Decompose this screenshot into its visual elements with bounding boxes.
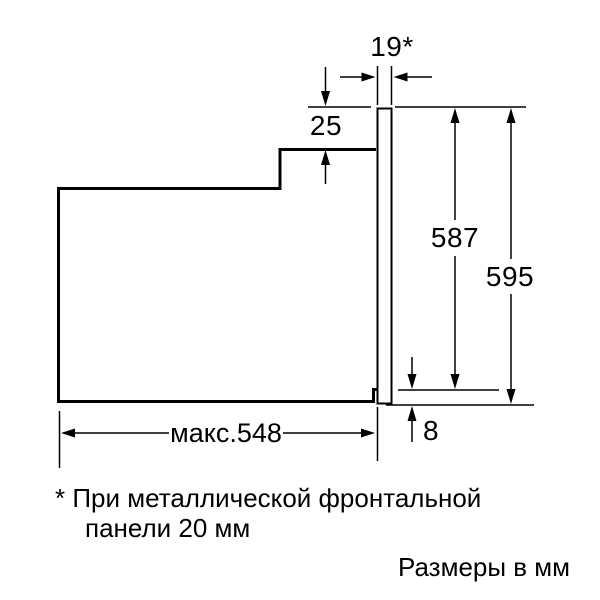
arrow-19-right <box>394 73 433 82</box>
oven-body-outline <box>59 150 378 402</box>
arrow-25-down <box>321 67 330 106</box>
footnote-line-1: * При металлической фронтальной <box>55 484 481 514</box>
units-caption: Размеры в мм <box>398 553 570 583</box>
label-max-depth: макс.548 <box>170 420 282 447</box>
arrow-25-up <box>321 150 330 184</box>
label-panel-thickness: 19* <box>370 33 414 61</box>
dim-line-595 <box>507 108 516 404</box>
arrow-8-up <box>408 406 417 442</box>
label-inner-height: 587 <box>431 224 479 252</box>
front-panel <box>378 109 392 404</box>
arrow-548-right <box>283 429 375 438</box>
arrow-548-left <box>61 429 169 438</box>
label-top-step: 25 <box>310 112 342 140</box>
arrow-8-down <box>408 357 417 389</box>
dimension-diagram: 19* 25 587 595 8 макс.548 * При металлич… <box>0 0 600 600</box>
label-total-height: 595 <box>486 263 534 291</box>
arrow-19-left <box>340 73 376 82</box>
footnote-line-2: панели 20 мм <box>85 514 250 544</box>
label-bottom-gap: 8 <box>423 417 439 445</box>
